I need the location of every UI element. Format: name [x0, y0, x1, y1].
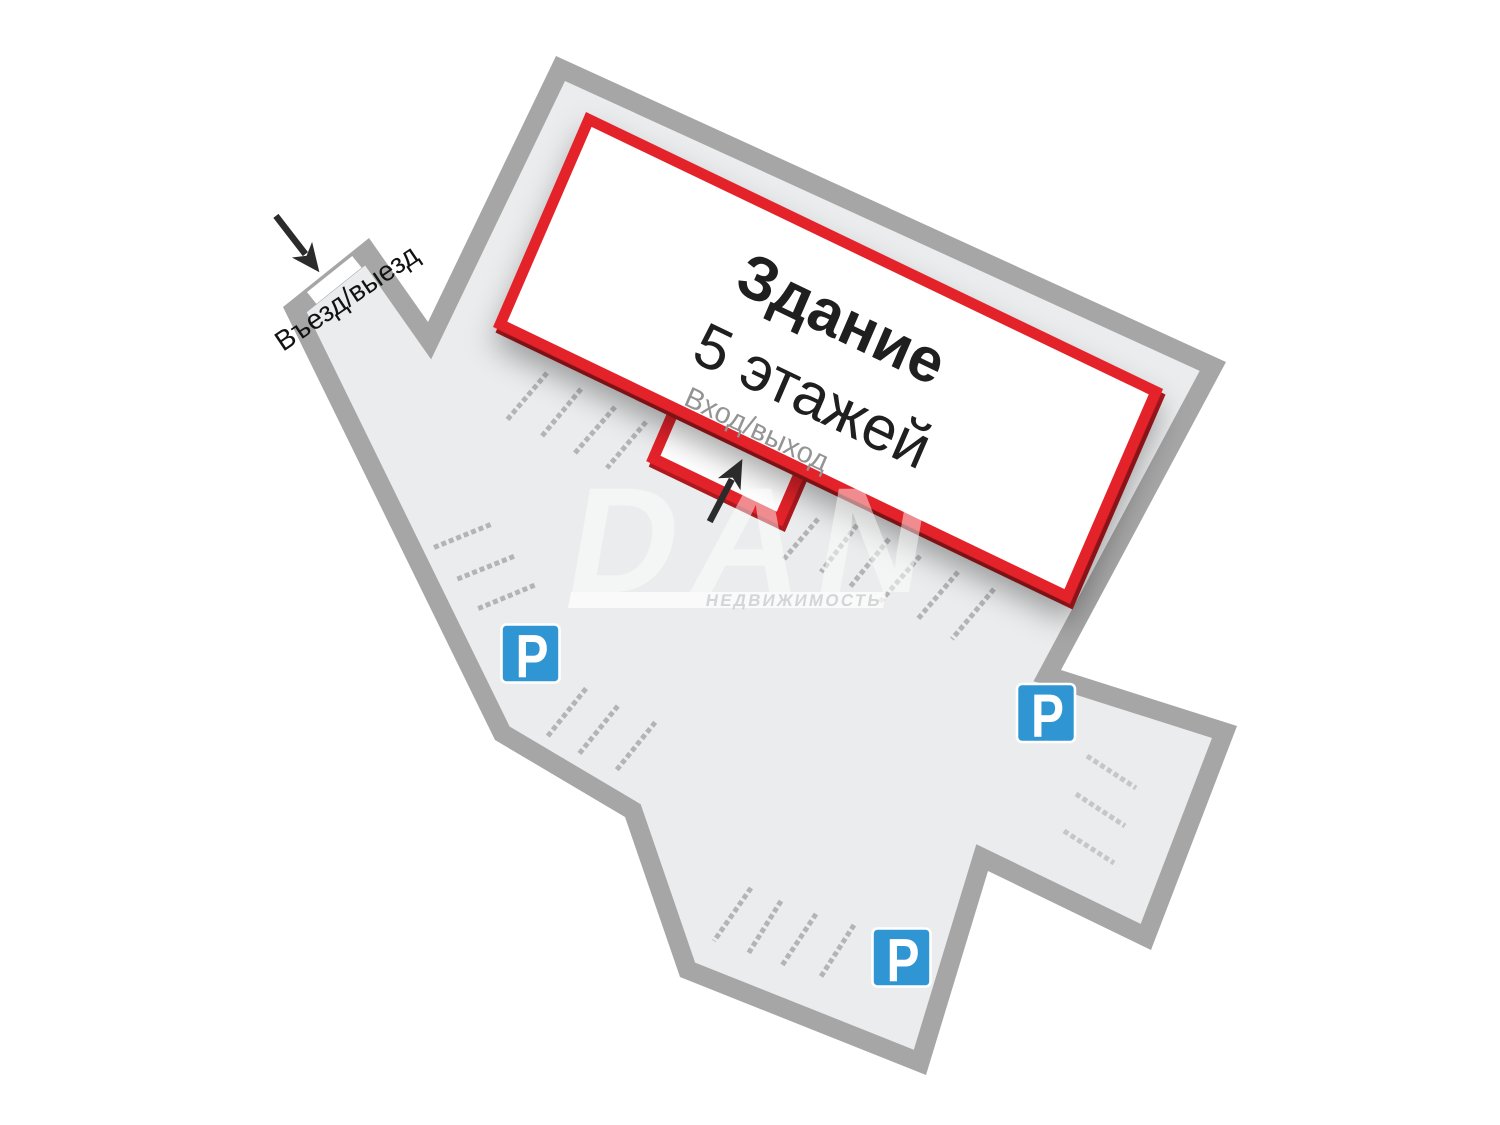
svg-text:НЕДВИЖИМОСТЬ: НЕДВИЖИМОСТЬ — [704, 590, 883, 610]
svg-text:P: P — [887, 926, 920, 994]
svg-text:P: P — [516, 622, 549, 690]
svg-text:P: P — [1031, 682, 1064, 750]
